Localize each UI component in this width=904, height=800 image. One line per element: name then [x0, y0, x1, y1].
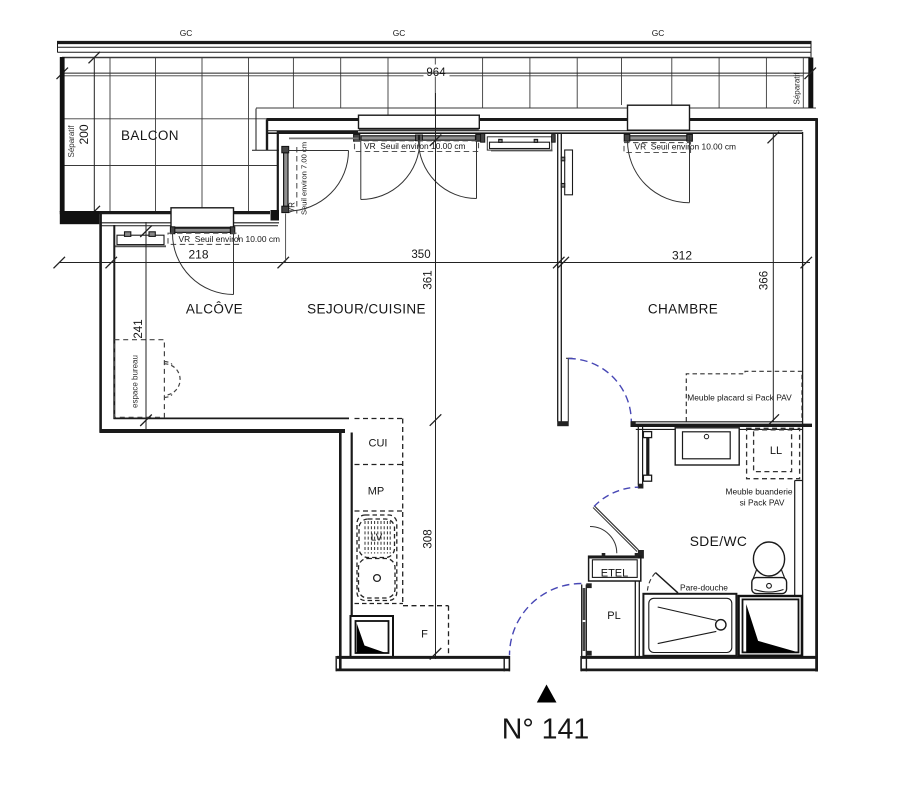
- svg-text:366: 366: [759, 271, 771, 290]
- svg-text:Pare-douche: Pare-douche: [680, 583, 728, 593]
- svg-text:N° 141: N° 141: [502, 714, 589, 746]
- svg-text:CUI: CUI: [369, 438, 388, 450]
- svg-text:Seuil environ 7.00 cm: Seuil environ 7.00 cm: [300, 142, 309, 215]
- svg-text:350: 350: [411, 249, 430, 261]
- svg-text:ALCÔVE: ALCÔVE: [186, 302, 243, 317]
- svg-text:Meuble buanderie: Meuble buanderie: [725, 487, 792, 497]
- svg-text:GC: GC: [393, 28, 406, 38]
- svg-text:si Pack PAV: si Pack PAV: [740, 498, 785, 508]
- svg-text:LL: LL: [770, 445, 782, 457]
- svg-text:LV: LV: [371, 533, 383, 544]
- svg-text:Séparatif: Séparatif: [793, 72, 802, 105]
- svg-text:SDE/WC: SDE/WC: [690, 534, 748, 549]
- svg-text:BALCON: BALCON: [121, 128, 179, 143]
- svg-text:Meuble placard si Pack PAV: Meuble placard si Pack PAV: [687, 392, 792, 402]
- svg-text:308: 308: [423, 529, 435, 548]
- svg-text:MP: MP: [368, 486, 385, 498]
- svg-text:Séparatif: Séparatif: [67, 125, 76, 158]
- svg-text:361: 361: [423, 270, 435, 289]
- svg-text:241: 241: [133, 319, 145, 338]
- svg-text:VR Seuil environ 10.00 cm: VR Seuil environ 10.00 cm: [364, 141, 466, 151]
- svg-text:VR Seuil environ 10.00 cm: VR Seuil environ 10.00 cm: [635, 141, 737, 151]
- svg-text:PL: PL: [607, 610, 620, 622]
- svg-text:espace bureau: espace bureau: [131, 355, 140, 408]
- svg-text:GC: GC: [180, 28, 193, 38]
- svg-text:CHAMBRE: CHAMBRE: [648, 302, 718, 317]
- svg-text:312: 312: [672, 248, 692, 262]
- svg-text:F: F: [421, 629, 428, 641]
- svg-text:964: 964: [426, 67, 446, 79]
- svg-text:218: 218: [188, 248, 208, 262]
- svg-text:ETEL: ETEL: [601, 567, 629, 579]
- svg-text:200: 200: [77, 124, 91, 144]
- svg-text:SEJOUR/CUISINE: SEJOUR/CUISINE: [307, 302, 426, 317]
- svg-text:VR Seuil environ 10.00 cm: VR Seuil environ 10.00 cm: [179, 234, 281, 244]
- svg-text:GC: GC: [652, 28, 665, 38]
